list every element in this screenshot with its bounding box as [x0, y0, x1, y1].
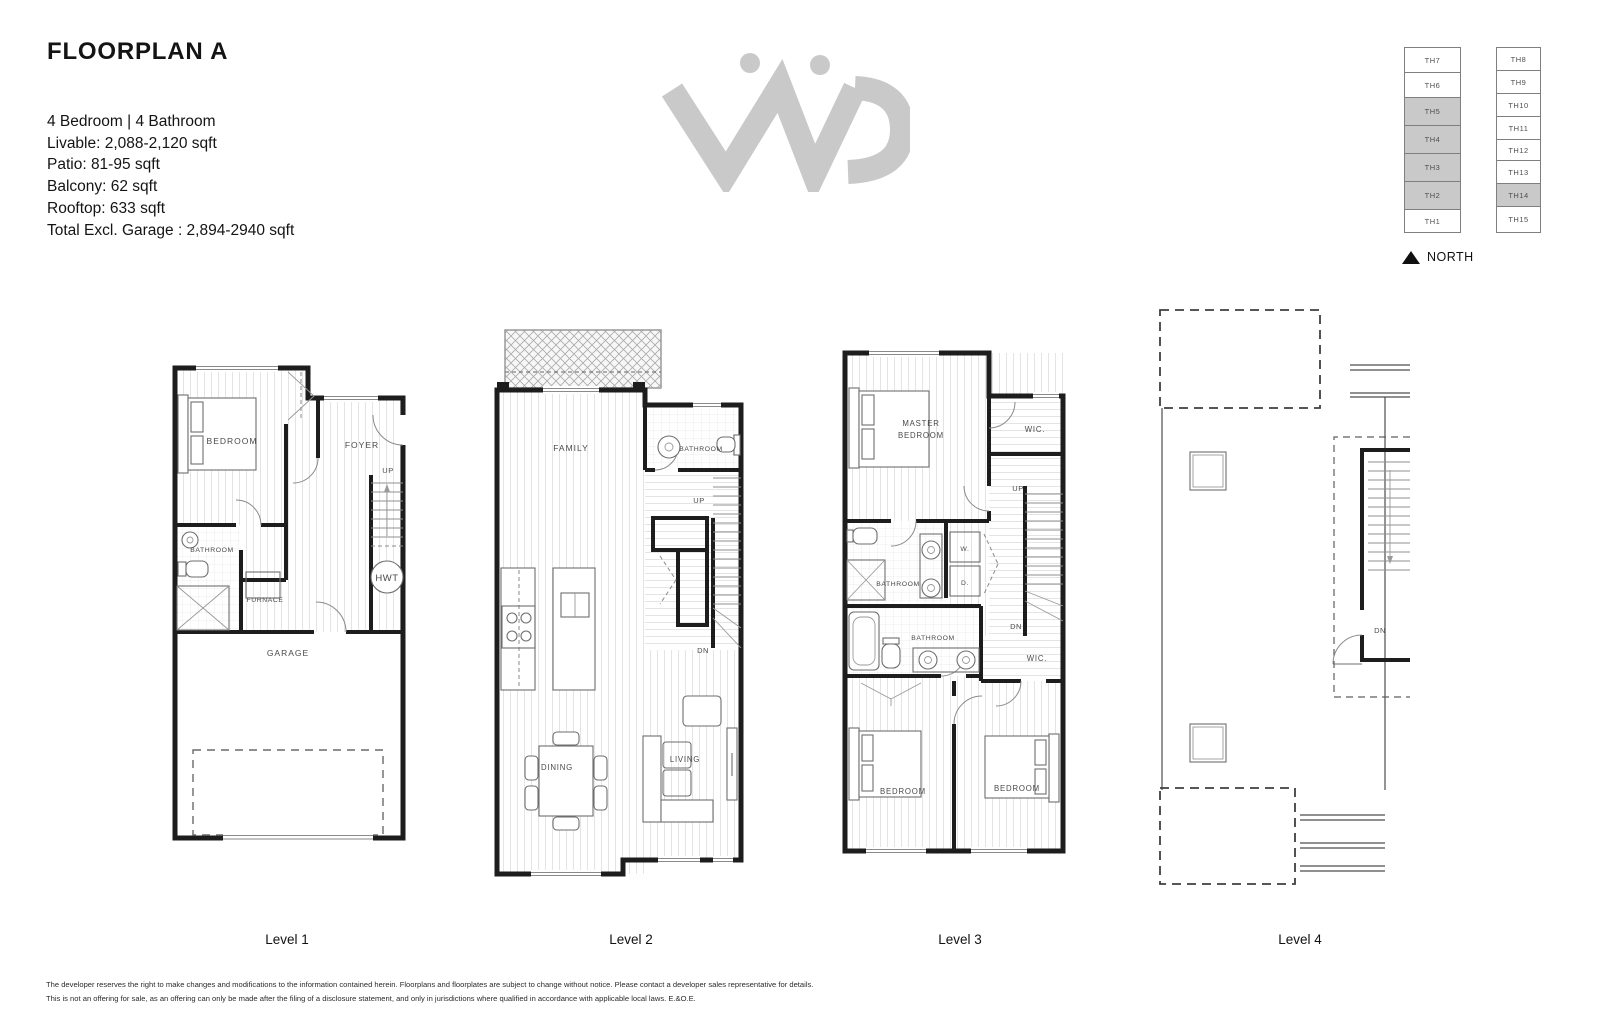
furnace-label: FURNACE [246, 597, 283, 604]
site-unit-th1: TH1 [1405, 210, 1460, 232]
site-plan-west-building: TH7 TH6 TH5 TH4 TH3 TH2 TH1 [1404, 47, 1461, 233]
site-unit-label: TH13 [1508, 168, 1528, 177]
dn-label: DN [1374, 626, 1386, 635]
bedroom-label: BEDROOM [207, 436, 258, 446]
level-2-plan: BATHROOM UP DN FAMILY [493, 318, 745, 883]
site-unit-label: TH1 [1425, 217, 1441, 226]
spec-livable: Livable: 2,088-2,120 sqft [47, 133, 294, 155]
bathroom-label: BATHROOM [190, 547, 234, 554]
spec-bed-bath: 4 Bedroom | 4 Bathroom [47, 111, 294, 133]
hwt-label: HWT [375, 573, 398, 584]
bedroom-right-label: BEDROOM [994, 784, 1040, 793]
family-label: FAMILY [553, 443, 589, 453]
north-arrow-icon [1402, 251, 1420, 264]
stair-enclosure [1362, 450, 1410, 660]
washer-label: W. [960, 546, 969, 553]
dn-label: DN [1010, 622, 1022, 631]
level-4-plan: DN [1150, 300, 1412, 892]
site-unit-th5: TH5 [1405, 98, 1460, 126]
page-title: FLOORPLAN A [47, 38, 228, 66]
site-unit-th15: TH15 [1497, 207, 1540, 232]
site-unit-th8: TH8 [1497, 48, 1540, 71]
living-label: LIVING [670, 755, 700, 764]
spec-patio: Patio: 81-95 sqft [47, 154, 294, 176]
dn-label: DN [697, 646, 709, 655]
disclaimer-line-1: The developer reserves the right to make… [46, 978, 836, 992]
level-3-plan: MASTER BEDROOM WIC. UP DN [821, 336, 1071, 856]
up-label: UP [693, 496, 704, 505]
garage-label: GARAGE [267, 648, 309, 658]
rooftop-dashed-area-bottom [1160, 788, 1295, 884]
site-unit-label: TH15 [1508, 215, 1528, 224]
level-1-caption: Level 1 [177, 932, 397, 947]
logo-dot-right [810, 55, 830, 75]
unit-specs: 4 Bedroom | 4 Bathroom Livable: 2,088-2,… [47, 111, 294, 241]
site-unit-label: TH12 [1508, 146, 1528, 155]
bathtub [849, 612, 879, 670]
bathroom-label: BATHROOM [679, 446, 723, 453]
spec-rooftop: Rooftop: 633 sqft [47, 198, 294, 220]
north-indicator: NORTH [1402, 250, 1474, 264]
wic-lower-label: WIC. [1027, 654, 1048, 663]
logo-dot-left [740, 53, 760, 73]
bedroom-left-label: BEDROOM [880, 787, 926, 796]
site-unit-label: TH14 [1508, 191, 1528, 200]
kitchen-counter [501, 568, 535, 690]
developer-logo-icon [650, 42, 910, 192]
disclaimer-line-2: This is not an offering for sale, as an … [46, 992, 836, 1006]
ensuite-bathroom-label: BATHROOM [876, 581, 920, 588]
main-bathroom-label: BATHROOM [911, 635, 955, 642]
bathroom-sink [658, 436, 680, 458]
site-unit-th6: TH6 [1405, 73, 1460, 98]
site-unit-th11: TH11 [1497, 117, 1540, 140]
site-unit-th13: TH13 [1497, 161, 1540, 184]
site-unit-th2: TH2 [1405, 182, 1460, 210]
toilet [882, 638, 900, 668]
site-unit-label: TH10 [1508, 101, 1528, 110]
dryer-label: D. [961, 580, 969, 587]
kitchen-island [553, 568, 595, 690]
garage-door [223, 833, 373, 842]
site-unit-label: TH8 [1511, 55, 1527, 64]
level-1-plan: BEDROOM FOYER UP HWT [166, 340, 411, 850]
site-unit-th10: TH10 [1497, 94, 1540, 117]
spec-balcony: Balcony: 62 sqft [47, 176, 294, 198]
foyer-label: FOYER [345, 440, 379, 450]
up-label: UP [1012, 484, 1023, 493]
ensuite-toilet [847, 528, 877, 544]
site-unit-th7: TH7 [1405, 48, 1460, 73]
site-plan-east-building: TH8 TH9 TH10 TH11 TH12 TH13 TH14 TH15 [1496, 47, 1541, 233]
rooftop-steps [1300, 815, 1385, 871]
master-bedroom-label-line1: MASTER [902, 419, 939, 428]
level-3-caption: Level 3 [850, 932, 1070, 947]
site-unit-th4: TH4 [1405, 126, 1460, 154]
level-4-caption: Level 4 [1190, 932, 1410, 947]
up-label: UP [382, 466, 393, 475]
site-unit-th9: TH9 [1497, 71, 1540, 94]
site-unit-th12: TH12 [1497, 140, 1540, 161]
deck [497, 330, 661, 390]
site-unit-label: TH11 [1509, 124, 1529, 133]
site-unit-label: TH3 [1425, 163, 1441, 172]
master-bed [849, 388, 929, 468]
site-unit-th14: TH14 [1497, 184, 1540, 207]
armchair [683, 696, 721, 726]
site-unit-label: TH4 [1425, 135, 1441, 144]
site-unit-th3: TH3 [1405, 154, 1460, 182]
level-2-caption: Level 2 [521, 932, 741, 947]
site-unit-label: TH5 [1425, 107, 1441, 116]
bed [178, 395, 256, 473]
dining-label: DINING [541, 763, 573, 772]
site-unit-label: TH9 [1511, 78, 1527, 87]
north-label: NORTH [1427, 250, 1474, 264]
spec-total: Total Excl. Garage : 2,894-2940 sqft [47, 220, 294, 242]
bathroom-sink [182, 532, 198, 548]
floorplan-sheet: FLOORPLAN A 4 Bedroom | 4 Bathroom Livab… [0, 0, 1600, 1035]
site-unit-label: TH7 [1425, 56, 1441, 65]
site-unit-label: TH2 [1425, 191, 1441, 200]
toilet [178, 561, 208, 577]
logo-w-mark [672, 86, 855, 174]
rooftop-dashed-area-top [1160, 310, 1320, 408]
site-unit-label: TH6 [1425, 81, 1441, 90]
wic-label: WIC. [1025, 425, 1046, 434]
planter [1190, 452, 1226, 762]
stair-door [1333, 635, 1362, 664]
master-bedroom-label-line2: BEDROOM [898, 431, 944, 440]
tv-console [727, 728, 737, 800]
